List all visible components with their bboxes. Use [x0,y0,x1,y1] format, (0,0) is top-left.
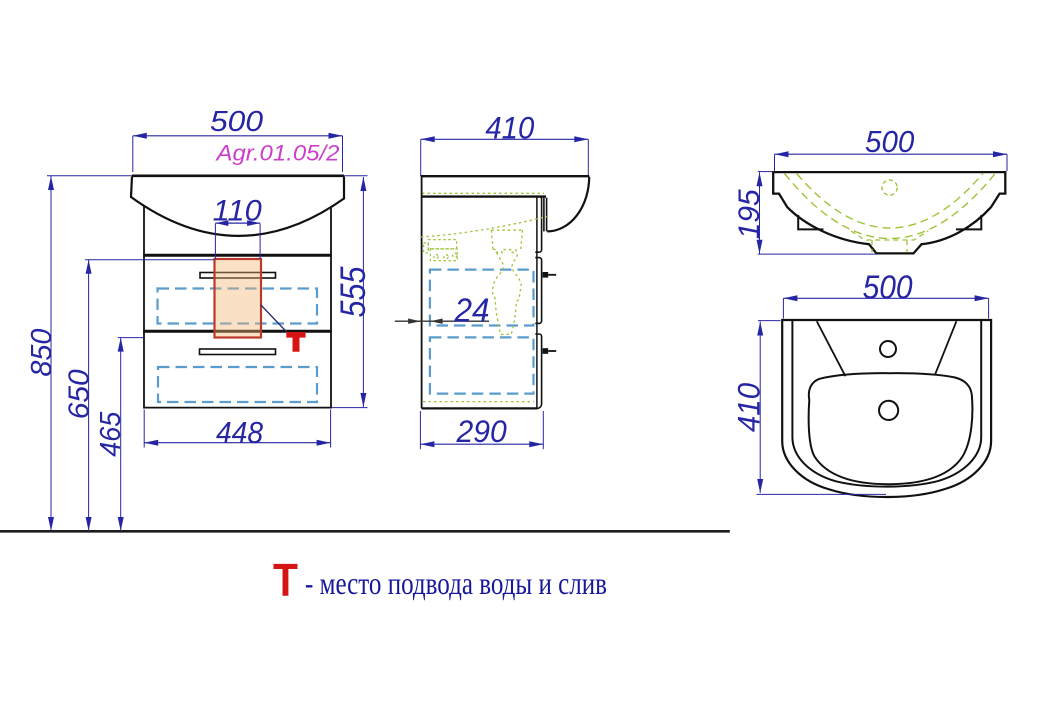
svg-text:- место подвода воды и слив: - место подвода воды и слив [305,565,607,601]
svg-text:290: 290 [456,413,508,449]
svg-text:500: 500 [863,268,914,305]
svg-text:850: 850 [26,329,58,377]
svg-text:448: 448 [216,417,263,450]
svg-text:Agr.01.05/2: Agr.01.05/2 [214,140,339,165]
svg-text:195: 195 [733,189,766,240]
svg-text:500: 500 [210,106,263,138]
svg-text:110: 110 [213,195,263,228]
svg-text:555: 555 [334,266,373,317]
svg-text:Т: Т [273,555,298,607]
svg-text:465: 465 [95,411,127,457]
svg-text:410: 410 [485,110,534,146]
svg-text:500: 500 [865,124,914,159]
svg-text:650: 650 [63,369,95,419]
svg-text:410: 410 [732,382,767,432]
svg-text:24: 24 [454,292,490,329]
